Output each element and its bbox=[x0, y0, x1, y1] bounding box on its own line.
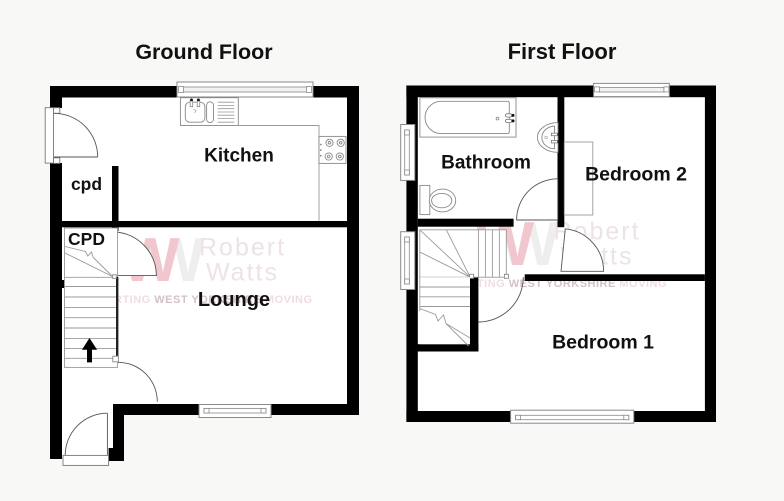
svg-text:Bedroom 1: Bedroom 1 bbox=[552, 332, 654, 354]
svg-text:Kitchen: Kitchen bbox=[204, 146, 274, 167]
svg-text:Bedroom 2: Bedroom 2 bbox=[585, 164, 687, 186]
svg-text:Ground Floor: Ground Floor bbox=[135, 40, 273, 64]
svg-text:First Floor: First Floor bbox=[508, 39, 617, 64]
svg-text:Robert: Robert bbox=[199, 234, 286, 262]
svg-text:Lounge: Lounge bbox=[198, 289, 270, 311]
svg-text:Bathroom: Bathroom bbox=[441, 153, 531, 174]
svg-text:cpd: cpd bbox=[71, 174, 102, 194]
svg-text:Watts: Watts bbox=[206, 259, 279, 287]
svg-text:CPD: CPD bbox=[68, 229, 105, 249]
